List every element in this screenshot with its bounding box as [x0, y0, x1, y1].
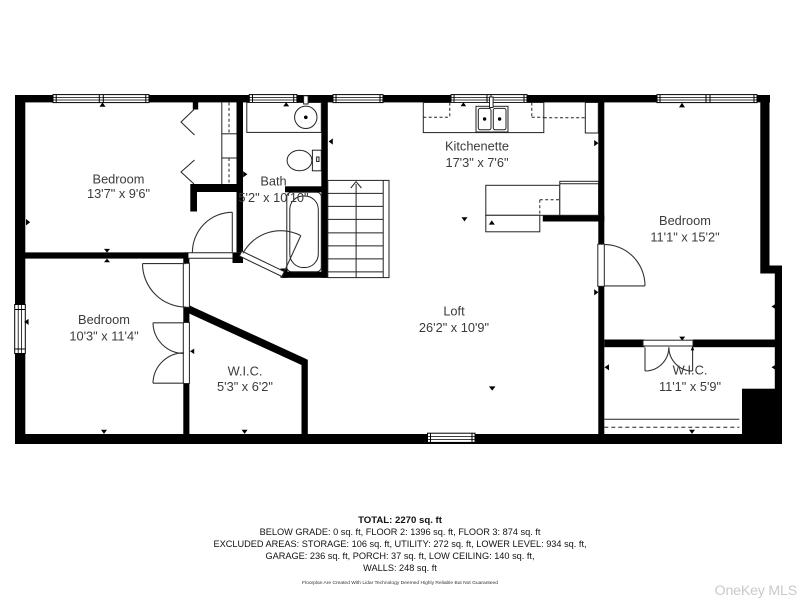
- svg-text:TOTAL: 2270 sq. ft: TOTAL: 2270 sq. ft: [358, 515, 443, 526]
- svg-text:Bath: Bath: [260, 174, 286, 189]
- svg-text:17'3" x 7'6": 17'3" x 7'6": [445, 155, 508, 170]
- svg-text:Loft: Loft: [443, 304, 465, 319]
- svg-text:11'1" x 5'9": 11'1" x 5'9": [659, 379, 721, 394]
- svg-text:Floorplan Are Created With Lid: Floorplan Are Created With Lidar Technol…: [302, 580, 498, 586]
- svg-text:Bedroom: Bedroom: [78, 312, 130, 327]
- svg-text:BELOW GRADE: 0 sq. ft, FLOOR 2: BELOW GRADE: 0 sq. ft, FLOOR 2: 1396 sq.…: [260, 527, 541, 537]
- svg-text:W.I.C.: W.I.C.: [673, 363, 708, 378]
- svg-text:Bedroom: Bedroom: [659, 213, 711, 228]
- svg-text:GARAGE: 236 sq. ft, PORCH: 37: GARAGE: 236 sq. ft, PORCH: 37 sq. ft, LO…: [265, 551, 534, 561]
- svg-text:Kitchenette: Kitchenette: [445, 139, 509, 154]
- svg-text:WALLS: 248 sq. ft: WALLS: 248 sq. ft: [363, 563, 437, 573]
- svg-text:Bedroom: Bedroom: [93, 172, 145, 187]
- svg-text:OneKey MLS: OneKey MLS: [715, 583, 797, 599]
- svg-text:26'2" x 10'9": 26'2" x 10'9": [419, 320, 489, 335]
- svg-text:5'3" x 6'2": 5'3" x 6'2": [217, 379, 273, 394]
- svg-text:13'7" x 9'6": 13'7" x 9'6": [87, 186, 150, 201]
- svg-text:5'2" x 10'10": 5'2" x 10'10": [238, 190, 308, 205]
- svg-text:10'3" x 11'4": 10'3" x 11'4": [69, 329, 138, 344]
- svg-text:W.I.C.: W.I.C.: [228, 364, 263, 379]
- svg-text:EXCLUDED AREAS: STORAGE: 106 s: EXCLUDED AREAS: STORAGE: 106 sq. ft, UTI…: [213, 539, 586, 549]
- svg-text:11'1" x 15'2": 11'1" x 15'2": [650, 230, 719, 245]
